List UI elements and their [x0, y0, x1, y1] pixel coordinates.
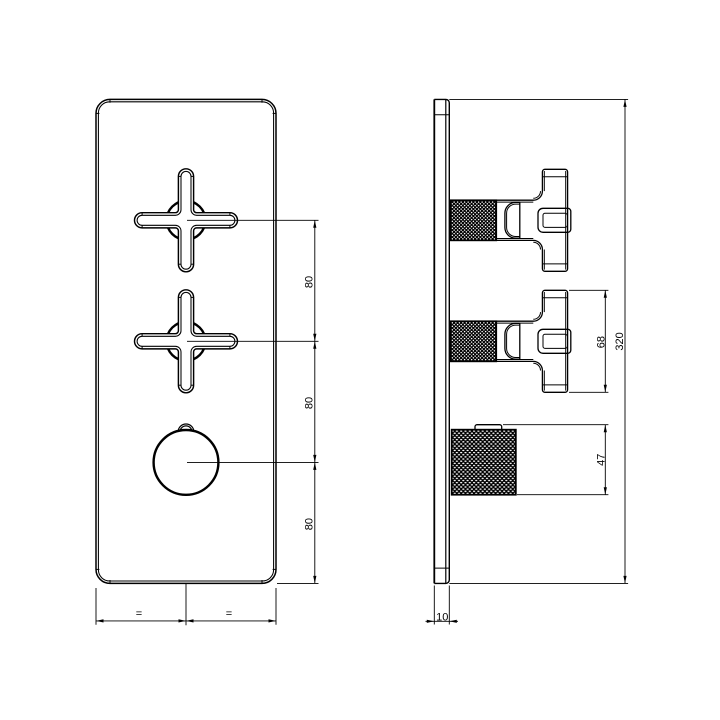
- svg-text:=: =: [136, 608, 142, 620]
- svg-text:68: 68: [596, 336, 608, 348]
- svg-text:=: =: [226, 608, 232, 620]
- svg-text:80: 80: [304, 397, 316, 409]
- svg-text:10: 10: [436, 611, 448, 623]
- svg-text:47: 47: [596, 454, 608, 466]
- svg-text:320: 320: [614, 332, 626, 350]
- svg-text:80: 80: [304, 518, 316, 530]
- svg-text:80: 80: [304, 276, 316, 288]
